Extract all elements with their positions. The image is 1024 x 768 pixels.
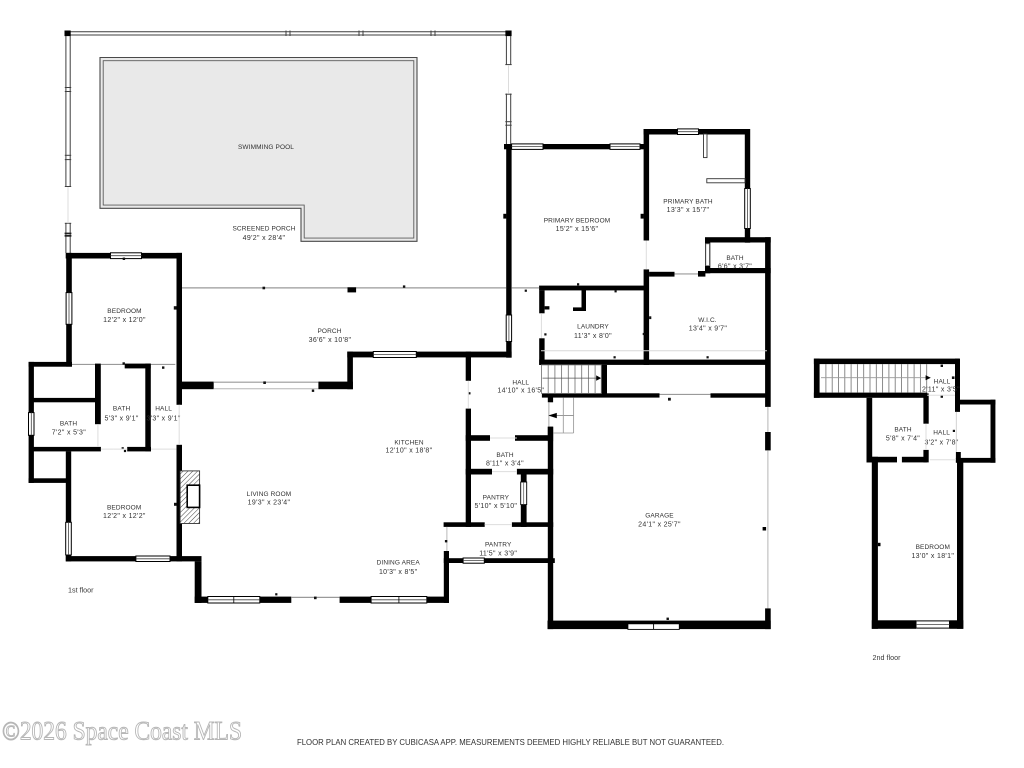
svg-text:KITCHEN: KITCHEN: [394, 440, 424, 447]
svg-text:HALL: HALL: [155, 406, 172, 413]
svg-text:8'11" x 3'4": 8'11" x 3'4": [486, 460, 524, 467]
svg-text:DINING AREA: DINING AREA: [377, 559, 421, 566]
svg-text:13'4" x 9'7": 13'4" x 9'7": [689, 326, 728, 333]
svg-text:19'3" x 23'4": 19'3" x 23'4": [248, 500, 291, 507]
svg-text:PORCH: PORCH: [317, 328, 341, 335]
svg-text:11'3" x 8'0": 11'3" x 8'0": [574, 333, 612, 340]
svg-text:12'10" x 18'8": 12'10" x 18'8": [386, 448, 433, 455]
svg-text:HALL: HALL: [933, 429, 950, 436]
svg-text:3'3" x 9'1": 3'3" x 9'1": [146, 416, 180, 423]
svg-text:6'6" x 3'7": 6'6" x 3'7": [718, 263, 752, 270]
svg-text:LIVING ROOM: LIVING ROOM: [247, 491, 292, 498]
svg-text:2nd floor: 2nd floor: [873, 653, 902, 662]
svg-text:PANTRY: PANTRY: [483, 494, 510, 501]
svg-text:HALL: HALL: [512, 379, 529, 386]
svg-text:BATH: BATH: [113, 405, 131, 412]
svg-text:PANTRY: PANTRY: [485, 541, 512, 548]
svg-text:LAUNDRY: LAUNDRY: [577, 323, 609, 330]
svg-text:36'6" x 10'8": 36'6" x 10'8": [309, 337, 352, 344]
svg-text:HALL: HALL: [934, 378, 951, 385]
svg-text:14'10" x 16'5": 14'10" x 16'5": [497, 388, 544, 395]
svg-text:©2026 Space Coast MLS: ©2026 Space Coast MLS: [2, 717, 242, 746]
svg-text:BATH: BATH: [894, 427, 912, 434]
svg-text:1st floor: 1st floor: [68, 586, 94, 595]
svg-text:SCREENED PORCH: SCREENED PORCH: [232, 226, 295, 233]
svg-text:5'8" x 7'4": 5'8" x 7'4": [886, 436, 920, 443]
svg-text:PRIMARY BEDROOM: PRIMARY BEDROOM: [544, 217, 611, 224]
svg-text:BEDROOM: BEDROOM: [916, 544, 950, 551]
svg-text:PRIMARY BATH: PRIMARY BATH: [663, 199, 713, 206]
svg-text:BATH: BATH: [726, 255, 744, 262]
svg-text:3'2" x 7'8": 3'2" x 7'8": [924, 440, 958, 447]
svg-text:GARAGE: GARAGE: [645, 513, 674, 520]
svg-text:SWIMMING POOL: SWIMMING POOL: [238, 144, 294, 151]
svg-text:49'2" x 28'4": 49'2" x 28'4": [243, 235, 286, 242]
svg-text:15'2" x 15'6": 15'2" x 15'6": [556, 226, 599, 233]
svg-text:12'2" x 12'0": 12'2" x 12'0": [103, 317, 146, 324]
svg-text:12'2" x 12'2": 12'2" x 12'2": [103, 513, 146, 520]
svg-text:2'11" x 3'5": 2'11" x 3'5": [922, 387, 960, 394]
svg-text:BATH: BATH: [60, 421, 78, 428]
svg-text:7'2" x 5'3": 7'2" x 5'3": [52, 429, 86, 436]
svg-text:10'3" x 8'5": 10'3" x 8'5": [379, 569, 418, 576]
svg-text:13'3" x 15'7": 13'3" x 15'7": [667, 207, 710, 214]
svg-text:FLOOR PLAN CREATED BY CUBICASA: FLOOR PLAN CREATED BY CUBICASA APP. MEAS…: [297, 737, 724, 747]
svg-text:24'1" x 25'7": 24'1" x 25'7": [638, 522, 681, 529]
svg-text:5'3" x 9'1": 5'3" x 9'1": [104, 415, 138, 422]
svg-text:5'10" x 5'10": 5'10" x 5'10": [475, 503, 518, 510]
svg-text:W.I.C.: W.I.C.: [698, 317, 716, 324]
svg-text:11'5" x 3'9": 11'5" x 3'9": [479, 550, 517, 557]
svg-text:13'0" x 18'1": 13'0" x 18'1": [911, 553, 954, 560]
svg-text:BEDROOM: BEDROOM: [107, 504, 141, 511]
svg-text:BEDROOM: BEDROOM: [107, 308, 141, 315]
svg-text:BATH: BATH: [496, 452, 514, 459]
